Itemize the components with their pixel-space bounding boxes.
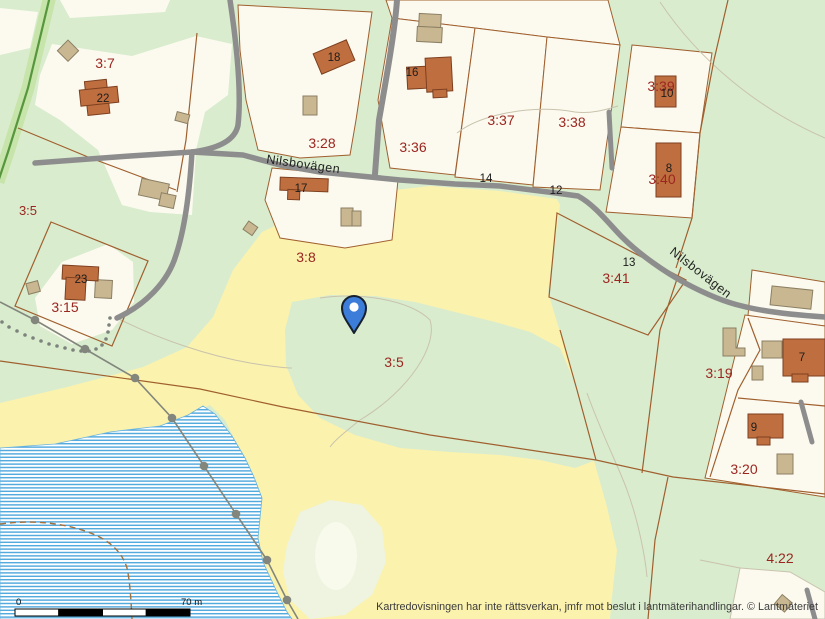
address-number-14: 14: [480, 173, 493, 185]
building-number-10: 10: [661, 88, 674, 100]
building-number-22: 22: [97, 93, 110, 105]
parcel-label-3-5-left: 3:5: [19, 203, 37, 218]
scale-start-label: 0: [16, 597, 21, 608]
pin-hole: [349, 302, 358, 311]
building-number-23: 23: [75, 274, 88, 286]
map-canvas[interactable]: Nilsbovägen Nilsbovägen 3:7 3:5 3:28 3:3…: [0, 0, 825, 619]
parcel-label-3-41: 3:41: [602, 270, 629, 286]
parcel-label-3-8: 3:8: [296, 249, 316, 265]
parcel-label-3-36: 3:36: [399, 139, 426, 155]
parcel-label-3-5-center: 3:5: [384, 354, 404, 370]
address-number-12: 12: [550, 185, 563, 197]
parcel-label-3-15: 3:15: [51, 299, 78, 315]
address-number-13: 13: [623, 257, 636, 269]
pale-ground-core: [315, 522, 357, 590]
building-number-18: 18: [328, 52, 341, 64]
parcel-label-4-22: 4:22: [766, 550, 793, 566]
parcel-label-3-20: 3:20: [730, 461, 757, 477]
building-number-7: 7: [799, 352, 805, 364]
parcel-label-3-19: 3:19: [705, 365, 732, 381]
scale-end-label: 70 m: [181, 597, 202, 608]
building-number-17: 17: [295, 183, 308, 195]
building-number-9: 9: [751, 422, 757, 434]
parcel-label-3-38: 3:38: [558, 114, 585, 130]
parcel-label-3-7: 3:7: [95, 55, 115, 71]
parcel-label-3-28: 3:28: [308, 135, 335, 151]
map-attribution: Kartredovisningen har inte rättsverkan, …: [376, 601, 818, 613]
map-viewport[interactable]: Nilsbovägen Nilsbovägen 3:7 3:5 3:28 3:3…: [0, 0, 825, 619]
building-number-8: 8: [666, 163, 672, 175]
building-number-16: 16: [406, 67, 419, 79]
parcel-label-3-37: 3:37: [487, 112, 514, 128]
